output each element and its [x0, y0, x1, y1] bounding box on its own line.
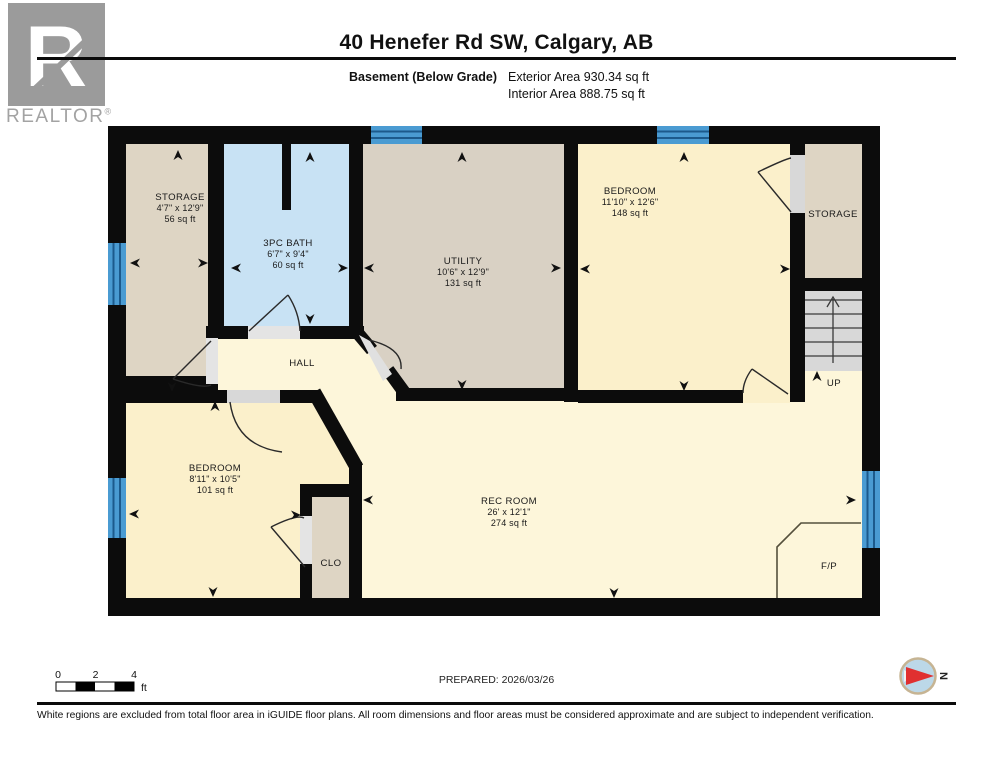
realtor-logo-word: REALTOR®	[6, 106, 126, 128]
room-dims-utility: 10'6" x 12'9"	[437, 267, 489, 277]
room-label-bedroom-tr: BEDROOM	[604, 186, 656, 197]
room-area-bedroom-tr: 148 sq ft	[612, 208, 649, 218]
room-dims-bath: 6'7" x 9'4"	[267, 249, 309, 259]
room-label-bedroom-bl: BEDROOM	[189, 463, 241, 474]
room-label-rec: REC ROOM	[481, 496, 537, 507]
room-label-hall: HALL	[289, 358, 315, 369]
room-dims-rec: 26' x 12'1"	[487, 507, 530, 517]
room-area-bath: 60 sq ft	[272, 260, 303, 270]
prepared-date: PREPARED: 2026/03/26	[0, 674, 993, 686]
floorplan-drawing: STORAGE 4'7" x 12'9" 56 sq ft 3PC BATH 6…	[0, 0, 993, 768]
exterior-area: Exterior Area 930.34 sq ft	[508, 70, 649, 84]
floor-label: Basement (Below Grade)	[240, 70, 497, 84]
room-label-utility: UTILITY	[444, 256, 483, 267]
room-area-utility: 131 sq ft	[445, 278, 482, 288]
disclaimer-text: White regions are excluded from total fl…	[37, 710, 967, 721]
bedroom-tr-floor	[571, 138, 800, 398]
title-rule	[37, 57, 956, 60]
room-area-bedroom-bl: 101 sq ft	[197, 485, 234, 495]
room-fills	[116, 138, 866, 608]
room-label-storage-r: STORAGE	[808, 209, 858, 220]
room-label-clo: CLO	[321, 558, 342, 569]
room-dims-storage-tl: 4'7" x 12'9"	[157, 203, 204, 213]
room-label-up: UP	[827, 378, 841, 389]
footer-rule	[37, 702, 956, 705]
room-area-storage-tl: 56 sq ft	[164, 214, 195, 224]
room-dims-bedroom-tr: 11'10" x 12'6"	[602, 197, 659, 207]
room-label-storage-tl: STORAGE	[155, 192, 205, 203]
page-title: 40 Henefer Rd SW, Calgary, AB	[0, 31, 993, 55]
room-label-bath: 3PC BATH	[263, 238, 312, 249]
room-dims-bedroom-bl: 8'11" x 10'5"	[189, 474, 240, 484]
interior-area: Interior Area 888.75 sq ft	[508, 87, 645, 101]
room-label-fireplace: F/P	[821, 561, 837, 572]
floorplan-page: STORAGE 4'7" x 12'9" 56 sq ft 3PC BATH 6…	[0, 0, 993, 768]
room-area-rec: 274 sq ft	[491, 518, 528, 528]
